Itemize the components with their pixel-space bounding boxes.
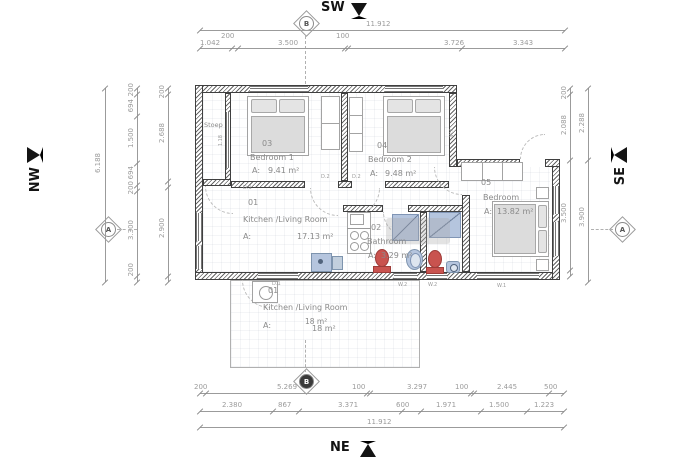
dim-label: 2.445	[497, 384, 517, 391]
dim-line-bottom-r2	[200, 411, 564, 412]
dim-line-bottom-r1	[200, 393, 564, 394]
toilet-bathroom2	[428, 250, 442, 268]
wall-wing-top-b	[545, 159, 560, 167]
wall-bedroom-divider	[341, 93, 348, 181]
dim-line-left-total	[105, 88, 106, 282]
tag-window-w2b: W.2	[428, 283, 437, 288]
pillow	[538, 230, 547, 253]
room-name-terrace: Kitchen /Living Room	[263, 304, 347, 312]
dim-tick	[561, 408, 567, 414]
tag-window-w2a: W.2	[398, 283, 407, 288]
counter-divider	[347, 228, 371, 229]
window-top-bedroom1	[250, 86, 308, 92]
nightstand	[536, 259, 549, 271]
room-area-prefix-bedroom3: A:	[484, 208, 492, 216]
dim-tick	[102, 279, 108, 285]
dim-label: 5.269	[277, 384, 297, 391]
dim-tick	[567, 273, 573, 279]
dim-label: 3.371	[338, 402, 358, 409]
toilet-tank	[426, 267, 444, 274]
compass-sw-arrow-icon	[351, 3, 367, 19]
room-number-terrace: 01	[268, 287, 278, 295]
dim-label: 200	[128, 263, 135, 276]
dim-label: 1.971	[436, 402, 456, 409]
dim-label: 200	[194, 384, 207, 391]
dim-label: 11.912	[367, 419, 392, 426]
compass-se-arrow-icon	[611, 147, 627, 163]
window-right-b	[553, 222, 559, 256]
section-marker-b-top-letter: B	[299, 16, 314, 31]
window-bottom-w2a	[394, 273, 417, 279]
window-bottom-w1	[477, 273, 539, 279]
dim-label: 3.726	[444, 40, 464, 47]
tag-door-d1-stoep: D.1	[243, 186, 252, 191]
pillow	[538, 205, 547, 228]
wall-bathroom-top-b	[408, 205, 470, 212]
closet-bedroom3	[461, 162, 523, 181]
dim-tick	[562, 45, 568, 51]
dim-tick	[562, 27, 568, 33]
dim-tick	[134, 279, 140, 285]
dim-label: 3.500	[561, 203, 568, 223]
room-area-kitchen: 17.13 m²	[297, 233, 333, 241]
mattress	[251, 116, 305, 153]
dim-label: 100	[352, 384, 365, 391]
window-stoep	[226, 112, 230, 168]
compass-se-label: SE	[614, 167, 627, 185]
dim-label: 11.912	[366, 21, 391, 28]
dim-label: 2.688	[159, 123, 166, 143]
section-marker-a-right: A	[609, 216, 636, 243]
dim-label: 2.288	[579, 113, 586, 133]
room-number-bedroom3: 05	[481, 179, 491, 187]
room-name-bedroom1: Bedroom 1	[250, 154, 294, 162]
tag-door-d1-bottom: D.1	[272, 282, 281, 287]
dim-label: 1.500	[128, 128, 135, 148]
window-left-b	[196, 246, 202, 269]
room-number-bedroom2: 04	[377, 142, 387, 150]
wall-bedroom3-left	[462, 195, 470, 272]
mattress	[387, 116, 441, 153]
room-area-bathroom: 3.29 m²	[381, 252, 412, 260]
section-line-a-right	[591, 229, 613, 230]
room-number-kitchen: 01	[248, 199, 258, 207]
window-left-a	[196, 213, 202, 241]
dim-label: 1.223	[534, 402, 554, 409]
pillow	[387, 99, 413, 113]
wall-stoep-bottom	[203, 179, 231, 186]
kitchen-appliance	[350, 214, 364, 225]
closet-divider	[321, 123, 340, 124]
dim-label: 694	[128, 99, 135, 112]
dim-label: 200	[221, 33, 234, 40]
dim-line-right-outer	[588, 88, 589, 282]
room-label-stoep: Stoep	[204, 122, 223, 129]
room-area-bedroom1: 9.41 m²	[268, 167, 299, 175]
dim-label: 3.900	[579, 207, 586, 227]
dim-label: 2.380	[222, 402, 242, 409]
dim-line-top-total	[200, 30, 565, 31]
dim-label: 1.500	[489, 402, 509, 409]
room-area-prefix-bedroom1: A:	[252, 167, 260, 175]
dim-label: 100	[336, 33, 349, 40]
floor-plan-canvas: SW NE NW SE B B A A 11.912 1.042 200 3.5…	[0, 0, 700, 464]
compass-nw-label: NW	[29, 167, 42, 192]
section-marker-b-top: B	[293, 10, 320, 37]
closet-divider	[349, 115, 363, 116]
dim-line-bottom-total	[200, 427, 564, 428]
dim-label: 3.500	[278, 40, 298, 47]
dim-label: 600	[396, 402, 409, 409]
dim-line-top-segments	[200, 48, 565, 49]
dim-label: 867	[278, 402, 291, 409]
tag-window-w1-upper: W.1	[450, 128, 455, 137]
pillow	[251, 99, 277, 113]
dim-label: 3.343	[513, 40, 533, 47]
room-area-prefix-terrace: A:	[263, 322, 271, 330]
kitchen-sink-drainer	[332, 256, 343, 270]
dim-label: 6.188	[95, 153, 102, 173]
room-area-prefix-bathroom: A:	[368, 252, 376, 260]
room-area-prefix-kitchen: A:	[243, 233, 251, 241]
closet-divider	[502, 162, 503, 181]
room-name-bedroom2: Bedroom 2	[368, 156, 412, 164]
window-right-a	[553, 186, 559, 214]
dim-tick	[165, 279, 171, 285]
room-name-kitchen: Kitchen /Living Room	[243, 216, 327, 224]
room-name-bedroom3: Bedroom	[483, 194, 519, 202]
basin-drain-icon	[450, 264, 458, 272]
tag-window-w1-bottom: W.1	[497, 284, 506, 289]
dim-tick	[585, 279, 591, 285]
dim-tick	[561, 424, 567, 430]
dim-label: 2.900	[159, 218, 166, 238]
compass-ne-arrow-icon	[360, 441, 376, 457]
stove-burner-icon	[350, 231, 359, 240]
dim-line-right-inner	[570, 88, 571, 276]
dim-label: 2.088	[561, 115, 568, 135]
wall-right	[552, 159, 560, 280]
room-area-bedroom3: 13.82 m²	[497, 208, 533, 216]
room-number-bedroom1: 03	[262, 140, 272, 148]
section-line-b-top	[305, 36, 306, 84]
window-top-bedroom2	[385, 86, 443, 92]
closet-bedroom2	[349, 97, 363, 152]
section-marker-b-bottom: B	[293, 368, 320, 395]
tag-door-d2-bedroom1: D.2	[321, 175, 330, 180]
compass-ne-label: NE	[330, 441, 350, 454]
section-marker-a-right-letter: A	[615, 222, 630, 237]
room-area-terrace-duplicate: 18 m²	[312, 325, 336, 333]
section-marker-b-bottom-letter: B	[299, 374, 314, 389]
compass-sw-label: SW	[321, 1, 345, 14]
section-marker-a-left-letter: A	[101, 222, 116, 237]
door-bottom-d1	[258, 273, 298, 279]
nightstand	[536, 187, 549, 199]
room-area-bedroom2: 9.48 m²	[385, 170, 416, 178]
room-area-prefix-bedroom2: A:	[370, 170, 378, 178]
pillow	[415, 99, 441, 113]
room-name-bathroom: Bathroom	[367, 238, 406, 246]
stove-burner-icon	[350, 242, 359, 251]
pillow	[279, 99, 305, 113]
tag-window-stoep: 1.18	[219, 135, 224, 146]
dim-label: 3.297	[407, 384, 427, 391]
dim-tick	[561, 390, 567, 396]
closet-divider	[349, 133, 363, 134]
wall-hall-center	[338, 181, 352, 188]
door-arc-entry	[520, 134, 545, 159]
compass-nw-arrow-icon	[27, 147, 43, 163]
dim-label: 694	[128, 166, 135, 179]
dim-label: 100	[455, 384, 468, 391]
tag-door-d2-bedroom2: D.2	[352, 175, 361, 180]
sink-drain-icon	[318, 259, 323, 264]
dim-label: 3.300	[128, 220, 135, 240]
room-number-bathroom: 02	[371, 224, 381, 232]
toilet-tank	[373, 266, 391, 273]
